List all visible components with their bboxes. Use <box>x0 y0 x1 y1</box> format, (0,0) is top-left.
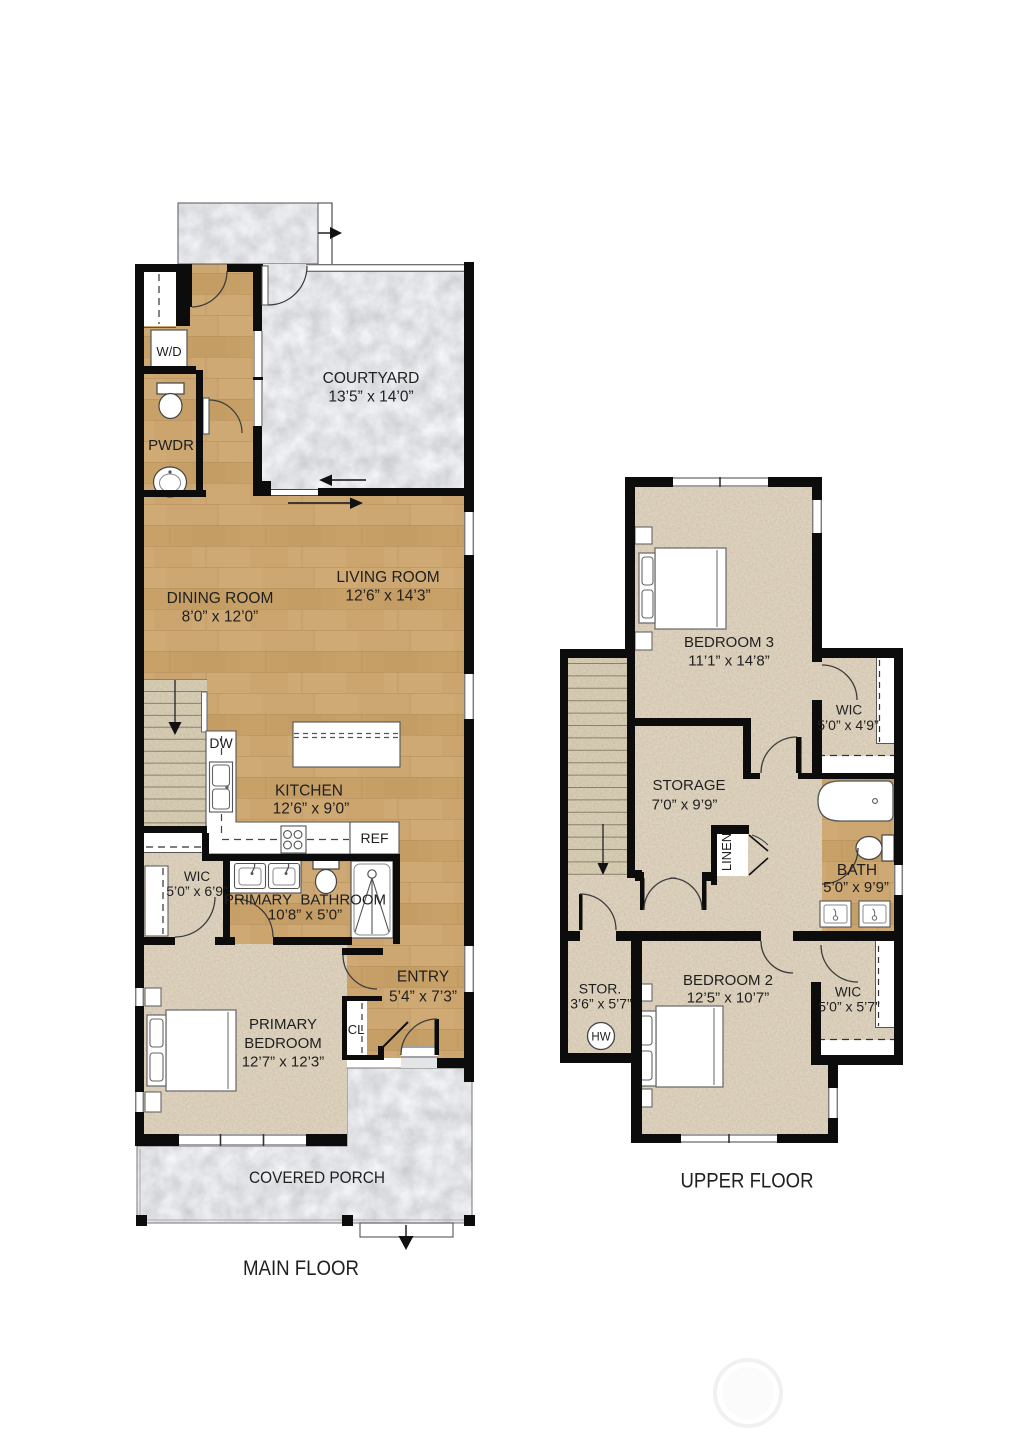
svg-text:13’5” x 14’0”: 13’5” x 14’0” <box>328 389 413 406</box>
svg-text:10’8” x 5’0”: 10’8” x 5’0” <box>268 907 342 924</box>
svg-text:MAIN FLOOR: MAIN FLOOR <box>243 1256 359 1280</box>
svg-text:BEDROOM 3: BEDROOM 3 <box>684 634 774 651</box>
svg-text:12’6” x 14’3”: 12’6” x 14’3” <box>345 588 430 605</box>
svg-text:5’0” x 9’9”: 5’0” x 9’9” <box>823 879 889 896</box>
svg-text:8’0” x 12’0”: 8’0” x 12’0” <box>182 609 259 626</box>
svg-text:DINING ROOM: DINING ROOM <box>167 590 274 607</box>
svg-text:LIVING ROOM: LIVING ROOM <box>336 569 439 586</box>
svg-text:UPPER FLOOR: UPPER FLOOR <box>681 1169 814 1193</box>
svg-text:HW: HW <box>591 1032 610 1044</box>
svg-text:STORAGE: STORAGE <box>652 777 725 794</box>
svg-text:PRIMARY: PRIMARY <box>249 1016 317 1033</box>
svg-text:ENTRY: ENTRY <box>397 969 449 986</box>
svg-text:STOR.: STOR. <box>579 981 622 997</box>
svg-text:W/D: W/D <box>156 344 181 359</box>
svg-text:12’6” x 9’0”: 12’6” x 9’0” <box>273 801 350 818</box>
svg-text:11’1” x 14’8”: 11’1” x 14’8” <box>688 653 769 670</box>
svg-text:BEDROOM 2: BEDROOM 2 <box>683 972 773 989</box>
svg-text:5’0” x 4’9”: 5’0” x 4’9” <box>817 717 879 733</box>
svg-text:7’0” x 9’9”: 7’0” x 9’9” <box>652 797 718 814</box>
svg-text:BATH: BATH <box>837 862 877 879</box>
svg-text:5’0” x 5’7”: 5’0” x 5’7” <box>818 999 880 1015</box>
svg-text:WIC: WIC <box>835 985 861 1000</box>
svg-text:COVERED PORCH: COVERED PORCH <box>249 1168 385 1187</box>
svg-text:CL: CL <box>348 1022 365 1037</box>
svg-text:5’0” x 6’9”: 5’0” x 6’9” <box>166 883 228 899</box>
svg-text:LINEN: LINEN <box>719 833 734 871</box>
svg-text:REF: REF <box>361 830 389 846</box>
svg-text:12’7” x 12’3”: 12’7” x 12’3” <box>242 1054 325 1071</box>
svg-text:3’6” x 5’7”: 3’6” x 5’7” <box>570 996 632 1012</box>
svg-text:BEDROOM: BEDROOM <box>244 1035 322 1052</box>
svg-text:WIC: WIC <box>836 703 862 718</box>
svg-text:WIC: WIC <box>184 869 210 884</box>
svg-text:KITCHEN: KITCHEN <box>275 783 343 800</box>
svg-text:COURTYARD: COURTYARD <box>323 370 420 387</box>
svg-text:12’5” x 10’7”: 12’5” x 10’7” <box>687 990 770 1007</box>
svg-text:5’4” x 7’3”: 5’4” x 7’3” <box>389 989 457 1006</box>
svg-text:PWDR: PWDR <box>148 437 194 454</box>
